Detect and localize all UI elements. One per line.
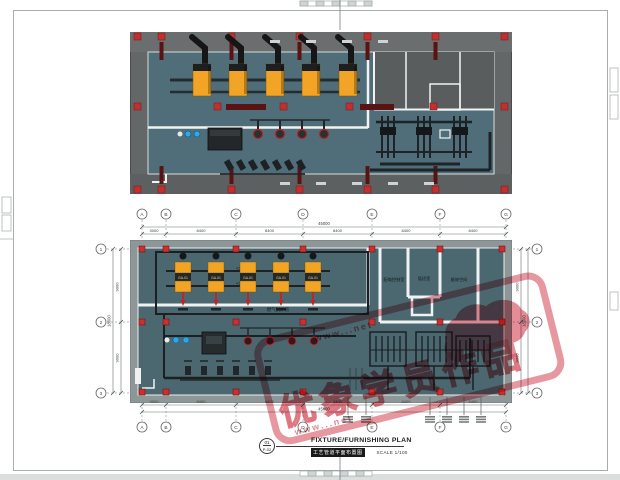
grid-bubble-label: A	[140, 212, 144, 218]
pipe-riser-tag-clusters	[343, 397, 486, 423]
boiler-tag: GA-01	[178, 276, 188, 280]
3d-axonometric-view	[130, 32, 512, 194]
drawing-title-en: FIXTURE/FURNISHING PLAN	[311, 437, 412, 444]
boiler-pipes	[170, 76, 360, 94]
dim-segment: 3000	[150, 228, 160, 233]
wall-band	[130, 32, 512, 194]
small-pump-row	[220, 159, 306, 174]
grid-bubble-label: F	[439, 425, 442, 431]
dim-total-right: 18000	[522, 315, 527, 327]
grid-bubble-label: G	[504, 425, 508, 431]
right-fold-marks	[610, 68, 618, 310]
plan-columns	[139, 246, 505, 395]
room-label: 维修空间	[451, 276, 468, 283]
boiler-unit: GA-01	[208, 253, 224, 311]
grid-bubbles-top: A B C D E F G	[137, 209, 511, 219]
sheet-bottom-edge	[0, 474, 620, 480]
pipe-elevation-label: 4.550	[236, 267, 244, 271]
equipment-3d	[178, 120, 331, 174]
control-cabinet	[202, 332, 226, 354]
grid-bubbles-bottom: A B C D E F G	[137, 422, 511, 432]
watermark-url-top: www...net	[313, 319, 373, 343]
boiler-unit	[229, 64, 247, 96]
hall-label: 燃气锅炉房	[267, 306, 290, 313]
tank	[165, 338, 170, 343]
grid-bubbles-right: 1 2 3	[532, 244, 542, 398]
boiler-unit: GA-01	[240, 253, 256, 311]
grid-bubble-label: B	[164, 212, 167, 218]
grid-bubble-label: C	[234, 425, 238, 431]
room-label: 配电控制室	[384, 276, 405, 283]
floor-plan-view: 4.550 4.550 GA-01 GA-01	[130, 240, 512, 403]
sheet-number: P-02	[263, 445, 271, 452]
top-ruler	[300, 0, 372, 30]
small-pump-row	[180, 360, 280, 380]
title-underline	[276, 446, 404, 447]
grid-bubble-label: 2	[100, 320, 103, 326]
boiler-units-3d	[193, 64, 357, 96]
detail-reference-bubble: 01 P-02	[259, 438, 275, 454]
pipe-elevation-label: 4.550	[236, 282, 244, 286]
grid-bubble-label: 3	[536, 391, 539, 397]
bottom-wall	[130, 174, 512, 194]
grid-bubble-label: A	[140, 425, 144, 431]
grid-bubble-label: 1	[100, 247, 103, 253]
cabinet-top	[210, 130, 240, 136]
dim-segment: 8400	[265, 399, 275, 404]
blue-pump	[194, 131, 200, 137]
top-wall	[130, 32, 512, 52]
plan-wall-band	[130, 240, 512, 403]
grid-bubble-label: E	[370, 212, 373, 218]
watermark-main-text: 优象学员作品	[273, 325, 530, 436]
grid-bubble-label: E	[370, 425, 373, 431]
boiler-unit	[193, 64, 211, 96]
plan-pipe-runs	[156, 252, 490, 390]
pump-header	[250, 120, 330, 129]
grid-bubble-label: C	[234, 212, 238, 218]
dim-segment: 8400	[469, 228, 479, 233]
grid-bubble-label: B	[164, 425, 167, 431]
left-fold-marks	[0, 197, 14, 239]
dim-segment: 8400	[265, 228, 275, 233]
dim-segment: 8400	[469, 399, 479, 404]
boiler-unit	[339, 64, 357, 96]
dimension-lines	[113, 227, 528, 412]
drawing-title-cn: 工艺管道平面布置图	[311, 448, 365, 457]
boiler-unit: GA-01	[273, 253, 289, 311]
dim-segment: 8400	[197, 399, 207, 404]
grid-bubble-label: 3	[100, 391, 103, 397]
boiler-chimneys	[192, 37, 351, 72]
scale-label: SCALE 1/100	[377, 450, 408, 455]
room-label: 值班室	[418, 275, 431, 282]
tank	[178, 132, 183, 137]
red-pumps	[244, 337, 318, 345]
cabinet-face	[206, 336, 222, 344]
grid-bubble-label: D	[301, 212, 305, 218]
plan-walls	[135, 248, 504, 388]
wall-vents	[270, 40, 434, 185]
dim-segment: 9000	[115, 282, 120, 292]
dim-total-left: 18000	[107, 315, 112, 327]
plan-floor	[138, 248, 504, 395]
grid-extension-lines	[107, 220, 531, 421]
grid-bubbles-left: 1 2 3	[96, 244, 106, 398]
dim-total-bottom: 45000	[318, 407, 330, 412]
plan-equipment	[165, 328, 326, 380]
dim-segment: 8400	[333, 399, 343, 404]
boiler-unit	[302, 64, 320, 96]
grid-bubble-label: G	[504, 212, 508, 218]
sheet-frame	[0, 0, 620, 480]
watermark-stamp: www...net 优象学员作品 www...net	[250, 269, 568, 448]
boiler-tag: GA-01	[243, 276, 253, 280]
plan-boiler-units: GA-01 GA-01 GA-01	[175, 253, 321, 311]
machine-room-floor	[148, 52, 494, 174]
dim-segment: 8400	[197, 228, 207, 233]
blue-pump	[173, 337, 179, 343]
boiler-unit: GA-01	[305, 253, 321, 311]
manifolds-3d	[370, 116, 490, 170]
plan-boiler-pipes	[166, 271, 330, 286]
boiler-unit	[266, 64, 284, 96]
blue-pump	[185, 131, 191, 137]
dimension-annotations: 45000 3000 8400 8400 8400 8400 8400 3000…	[0, 0, 620, 480]
control-cabinet	[208, 128, 242, 150]
watermark-url-bottom: www...net	[294, 413, 354, 437]
dim-segment: 9000	[515, 353, 520, 363]
pump-header	[240, 328, 325, 337]
dim-segment: 9000	[115, 353, 120, 363]
dim-segment: 3000	[150, 399, 160, 404]
grid-bubble-label: D	[301, 425, 305, 431]
dim-segment: 8400	[333, 228, 343, 233]
dim-total-top: 45000	[318, 221, 330, 226]
sheet-border	[14, 11, 608, 471]
blue-pump	[183, 337, 189, 343]
grid-bubble-label: F	[439, 212, 442, 218]
title-block: 01 P-02 FIXTURE/FURNISHING PLAN 工艺管道平面布置…	[256, 436, 436, 460]
dim-segment: 9000	[515, 282, 520, 292]
drawing-subtitle: 工艺管道平面布置图 SCALE 1/100	[311, 448, 408, 457]
boiler-tag: GA-01	[308, 276, 318, 280]
partition-walls	[148, 52, 494, 182]
dim-segment: 8400	[402, 228, 412, 233]
column-caps	[134, 33, 508, 193]
structural-columns	[134, 33, 508, 193]
grid-bubble-label: 1	[536, 247, 539, 253]
drawing-sheet: 4.550 4.550 GA-01 GA-01	[0, 0, 620, 480]
boiler-tag: GA-01	[211, 276, 221, 280]
dim-segment: 8400	[402, 399, 412, 404]
dimension-ticks	[111, 225, 530, 414]
elephant-logo-icon	[430, 282, 545, 378]
boiler-unit: GA-01	[175, 253, 191, 311]
beam-stubs	[160, 42, 438, 184]
red-pumps	[254, 130, 329, 139]
boiler-tag: GA-01	[276, 276, 286, 280]
right-rooms-floor	[374, 52, 494, 110]
grid-bubble-label: 2	[536, 320, 539, 326]
